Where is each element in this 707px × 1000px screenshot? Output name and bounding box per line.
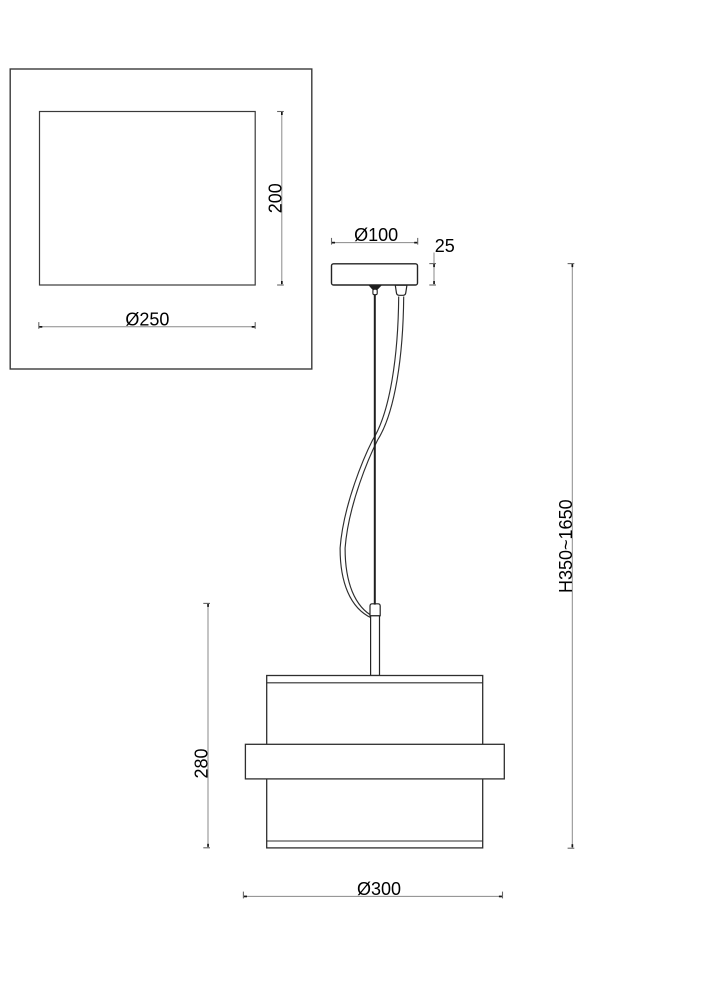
svg-text:280: 280 [192,748,212,778]
svg-text:25: 25 [435,236,455,256]
svg-text:200: 200 [266,183,286,213]
svg-text:H350~1650: H350~1650 [556,499,576,593]
svg-text:Ø250: Ø250 [125,309,169,329]
svg-text:Ø300: Ø300 [357,879,401,899]
svg-text:Ø100: Ø100 [354,225,398,245]
